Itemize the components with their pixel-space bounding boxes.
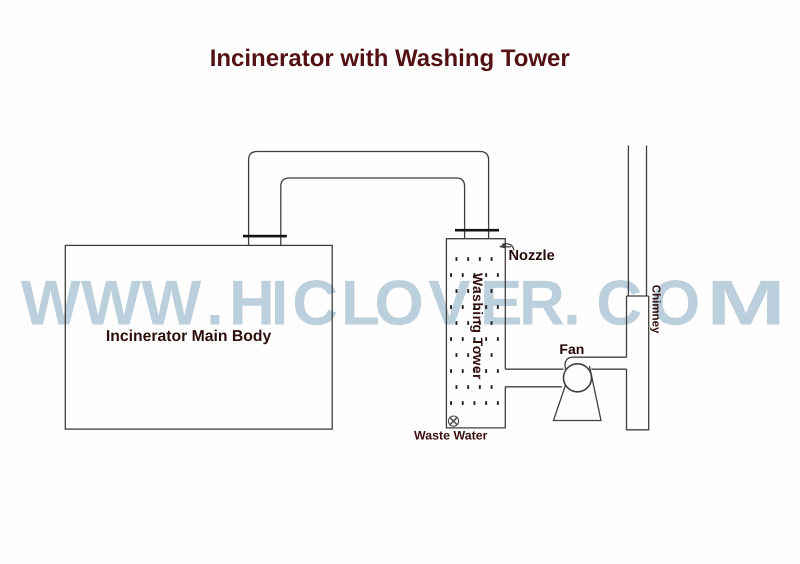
svg-text:Fan: Fan bbox=[559, 341, 584, 357]
svg-text:Incinerator with Washing Tower: Incinerator with Washing Tower bbox=[210, 45, 570, 72]
svg-text:Washing Tower: Washing Tower bbox=[470, 273, 485, 380]
svg-text:M: M bbox=[706, 269, 785, 339]
svg-text:Chimney: Chimney bbox=[650, 285, 662, 334]
svg-text:Nozzle: Nozzle bbox=[509, 248, 555, 264]
svg-text:Incinerator Main Body: Incinerator Main Body bbox=[106, 328, 272, 345]
svg-text:Waste Water: Waste Water bbox=[414, 429, 488, 443]
